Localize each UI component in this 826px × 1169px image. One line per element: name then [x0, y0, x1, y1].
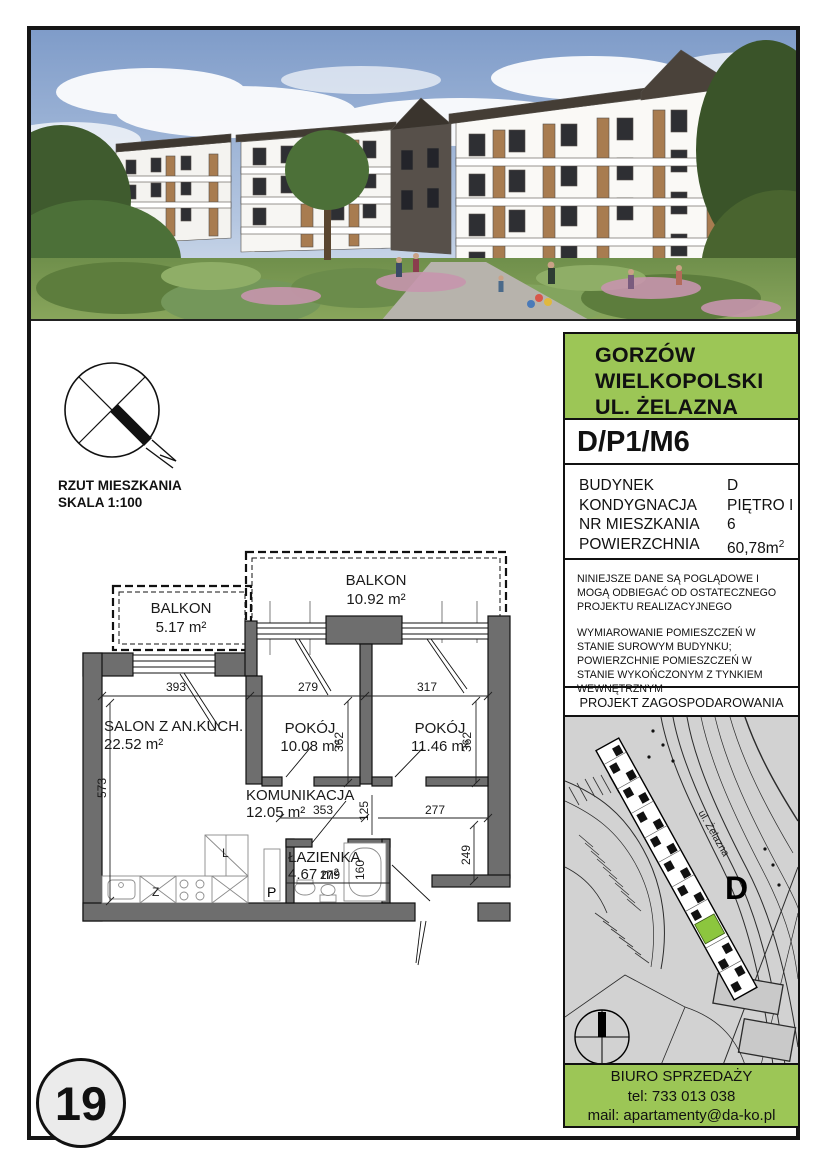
detail-value: D — [727, 476, 798, 496]
dimension-label: 125 — [357, 801, 371, 821]
fixture-label: L — [222, 846, 229, 860]
dimension-label: 279 — [298, 680, 318, 694]
table-row: NR MIESZKANIA 6 — [579, 515, 798, 535]
table-row: BUDYNEK D — [579, 476, 798, 496]
room-label: POKÓJ — [285, 720, 336, 737]
plan-title: RZUT MIESZKANIA — [58, 477, 182, 494]
fixture-label: P — [267, 884, 276, 900]
dimension-label: 317 — [417, 680, 437, 694]
dimension-labels: 393 279 317 362 362 573 353 125 277 249 … — [95, 680, 474, 882]
room-label: POKÓJ — [415, 720, 466, 737]
dimension-label: 573 — [95, 778, 109, 798]
room-area: 12.05 m² — [246, 804, 305, 821]
dimension-label: 279 — [320, 868, 340, 882]
detail-label: KONDYGNACJA — [579, 496, 727, 516]
location-line: UL. ŻELAZNA — [595, 394, 790, 420]
dimension-label: 160 — [353, 860, 367, 880]
room-label: BALKON — [346, 572, 407, 589]
site-plan-map: ul. Żelazna D — [565, 717, 798, 1065]
dimension-label: 353 — [313, 803, 333, 817]
room-area: 10.08 m² — [280, 738, 339, 755]
detail-value: 60,78m2 — [727, 535, 798, 555]
room-area: 10.92 m² — [346, 591, 405, 608]
floor-plan: BALKON 10.92 m² BALKON 5.17 m² SALON Z A… — [80, 543, 540, 1083]
disclaimer-text: WYMIAROWANIE POMIESZCZEŃ W STANIE SUROWY… — [577, 627, 786, 696]
unit-code: D/P1/M6 — [565, 420, 798, 465]
room-label: BALKON — [151, 600, 212, 617]
photo-illustration — [31, 30, 796, 321]
dimension-label: 362 — [332, 732, 346, 752]
dimension-label: 277 — [425, 803, 445, 817]
plan-scale: SKALA 1:100 — [58, 494, 182, 511]
room-label: KOMUNIKACJA — [246, 787, 354, 804]
dimension-label: 362 — [460, 732, 474, 752]
sales-office-label: BIURO SPRZEDAŻY — [565, 1067, 798, 1087]
sales-office-footer: BIURO SPRZEDAŻY tel: 733 013 038 mail: a… — [565, 1065, 798, 1126]
disclaimer-text: NINIEJSZE DANE SĄ POGLĄDOWE I MOGĄ ODBIE… — [577, 573, 786, 614]
detail-label: BUDYNEK — [579, 476, 727, 496]
site-map-drawing: ul. Żelazna D — [565, 717, 798, 1065]
room-area: 22.52 m² — [104, 736, 163, 753]
location-line: WIELKOPOLSKI — [595, 368, 790, 394]
disclaimer-section: NINIEJSZE DANE SĄ POGLĄDOWE I MOGĄ ODBIE… — [565, 560, 798, 688]
building-label: D — [725, 870, 748, 906]
building-rendering-photo — [31, 30, 796, 321]
page-number: 19 — [55, 1076, 107, 1131]
sales-phone: tel: 733 013 038 — [565, 1087, 798, 1107]
page-number-badge: 19 — [36, 1058, 126, 1148]
info-sidebar: GORZÓW WIELKOPOLSKI UL. ŻELAZNA D/P1/M6 … — [563, 332, 800, 1128]
dimension-label: 393 — [166, 680, 186, 694]
orientation-compass-icon — [60, 358, 180, 473]
sales-email: mail: apartamenty@da-ko.pl — [565, 1106, 798, 1126]
map-north-icon — [575, 1010, 629, 1065]
location-header: GORZÓW WIELKOPOLSKI UL. ŻELAZNA — [565, 334, 798, 420]
table-row: POWIERZCHNIA 60,78m2 — [579, 535, 798, 555]
table-row: KONDYGNACJA PIĘTRO I — [579, 496, 798, 516]
dimension-label: 249 — [459, 845, 473, 865]
kitchen-fixtures — [102, 835, 280, 903]
plan-scale-label: RZUT MIESZKANIA SKALA 1:100 — [58, 477, 182, 511]
room-label: ŁAZIENKA — [288, 849, 361, 866]
room-area: 5.17 m² — [156, 619, 207, 636]
location-line: GORZÓW — [595, 342, 790, 368]
detail-value: 6 — [727, 515, 798, 535]
unit-details-table: BUDYNEK D KONDYGNACJA PIĘTRO I NR MIESZK… — [565, 465, 798, 560]
site-plan-title: PROJEKT ZAGOSPODAROWANIA TERENU — [565, 688, 798, 717]
detail-label: POWIERZCHNIA — [579, 535, 727, 555]
detail-value: PIĘTRO I — [727, 496, 798, 516]
detail-label: NR MIESZKANIA — [579, 515, 727, 535]
fixture-label: Z — [152, 885, 159, 899]
room-label: SALON Z AN.KUCH. — [104, 718, 243, 735]
